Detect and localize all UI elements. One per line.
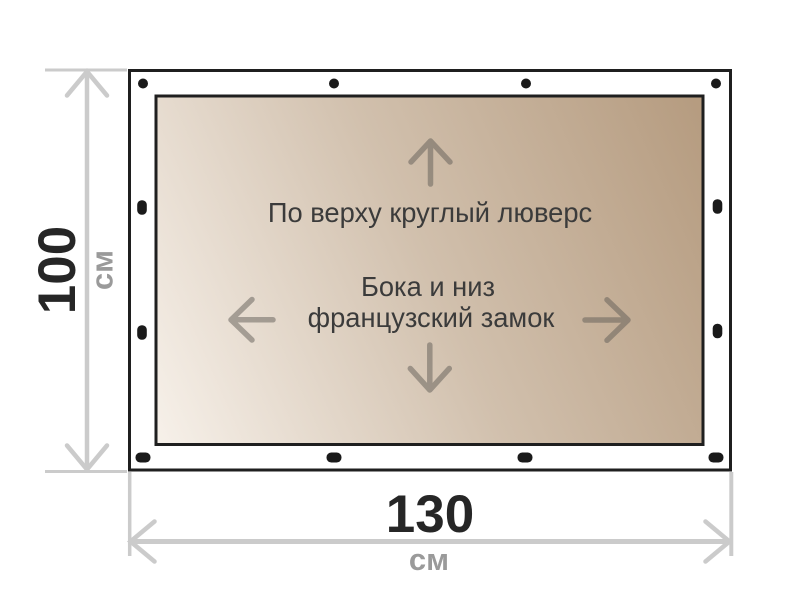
svg-text:французский замок: французский замок [308,302,556,333]
svg-text:см: см [409,542,449,577]
svg-text:Бока и низ: Бока и низ [361,271,495,302]
svg-text:см: см [85,250,120,290]
svg-text:По верху круглый люверс: По верху круглый люверс [268,197,592,228]
svg-text:130: 130 [386,485,474,544]
svg-text:100: 100 [28,226,87,314]
